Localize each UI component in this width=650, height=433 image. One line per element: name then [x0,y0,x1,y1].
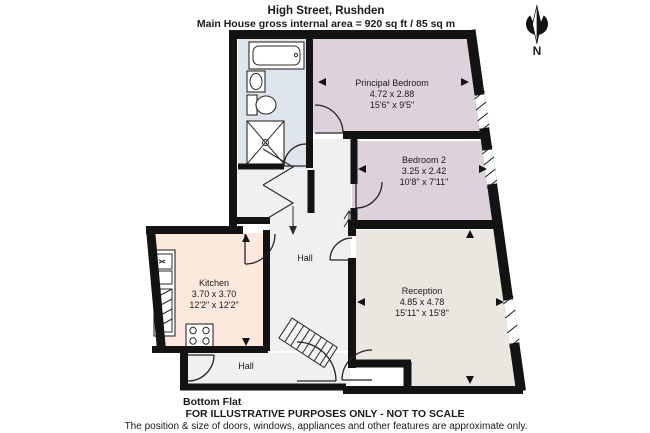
floorplan-page: N High Street, Rushden Main House gross … [0,0,650,433]
bedroom-2-imperial: 10'8" x 7'11" [400,177,449,187]
window-principal-bedroom [480,95,485,128]
window-reception [508,300,514,343]
floor-label: Bottom Flat [183,396,242,408]
bedroom-2-name: Bedroom 2 [402,155,446,165]
floorplan-svg: N High Street, Rushden Main House gross … [0,0,650,433]
reception-imperial: 15'11" x 15'8" [395,308,449,318]
bedroom-2-metric: 3.25 x 2.42 [402,166,447,176]
principal-bedroom-imperial: 15'6" x 9'5" [370,100,414,110]
principal-bedroom-name: Principal Bedroom [355,78,429,88]
page-title: High Street, Rushden [268,5,385,17]
page-subtitle: Main House gross internal area = 920 sq … [197,18,455,30]
cooker-hob [186,324,213,347]
toilet-bowl [256,96,276,114]
hall-label: Hall [297,253,313,263]
footer-disclaimer: FOR ILLUSTRATIVE PURPOSES ONLY - NOT TO … [185,408,464,420]
north-arrow-half [533,5,538,44]
reception-name: Reception [402,286,443,296]
compass-north-label: N [533,44,542,58]
reception-metric: 4.85 x 4.78 [400,297,445,307]
window-bedroom-2 [487,150,492,184]
kitchen-metric: 3.70 x 3.70 [192,289,237,299]
kitchen-name: Kitchen [199,278,229,288]
compass: N [526,5,548,58]
principal-bedroom-metric: 4.72 x 2.88 [370,89,415,99]
footer-note: The position & size of doors, windows, a… [125,421,528,432]
kitchen-imperial: 12'2" x 12'2" [189,300,238,310]
hall-bottom-label: Hall [238,361,254,371]
